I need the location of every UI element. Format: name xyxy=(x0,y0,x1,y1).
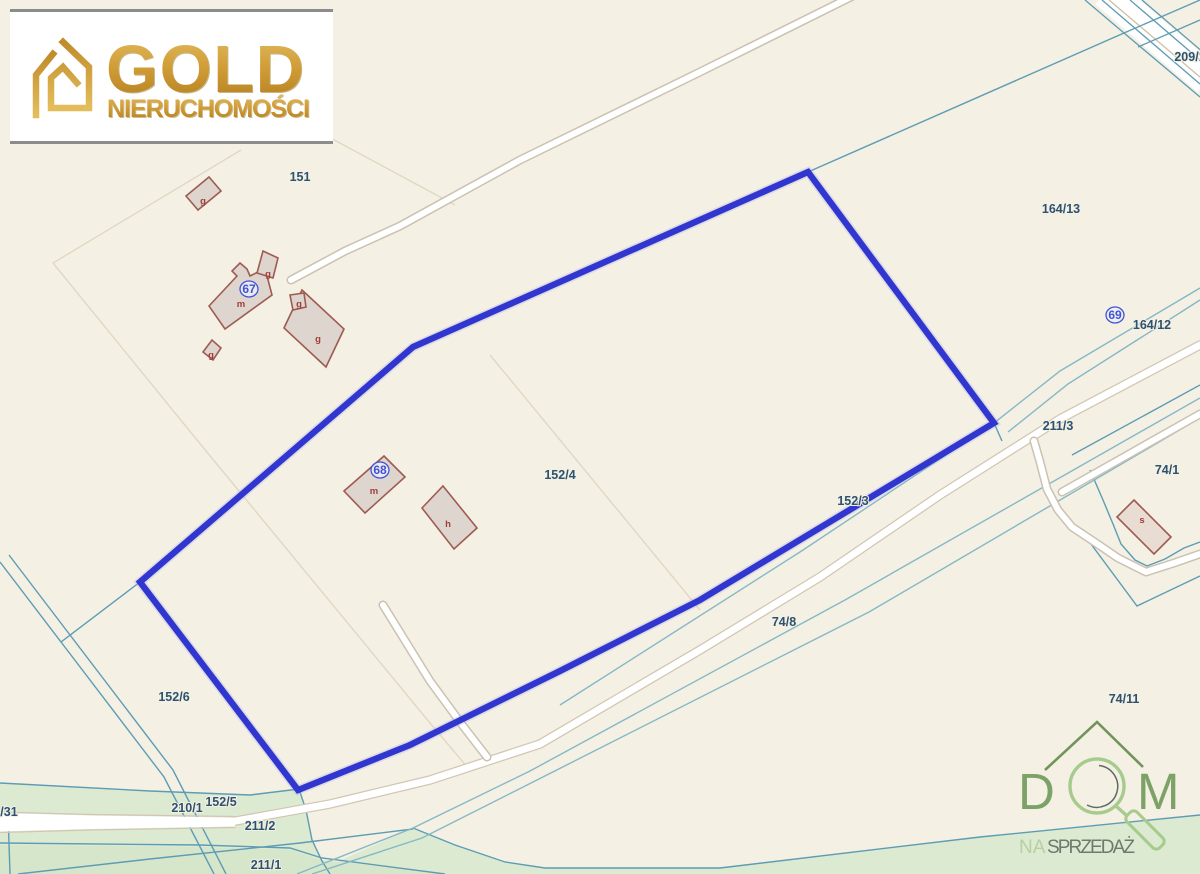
svg-text:74/1: 74/1 xyxy=(1155,463,1179,477)
svg-text:211/3: 211/3 xyxy=(1043,419,1074,433)
svg-text:g: g xyxy=(265,269,271,280)
svg-text:74/8: 74/8 xyxy=(772,615,796,629)
svg-text:67: 67 xyxy=(242,282,256,296)
svg-text:NIERUCHOMOŚCI: NIERUCHOMOŚCI xyxy=(107,93,310,123)
svg-text:g: g xyxy=(315,334,321,345)
svg-text:m: m xyxy=(237,299,245,310)
svg-text:g: g xyxy=(200,196,206,207)
svg-text:68: 68 xyxy=(373,463,387,477)
svg-text:211/1: 211/1 xyxy=(251,858,282,872)
svg-text:152/5: 152/5 xyxy=(205,795,236,809)
svg-text:/31: /31 xyxy=(0,805,17,819)
svg-text:74/11: 74/11 xyxy=(1109,692,1140,706)
svg-text:211/2: 211/2 xyxy=(245,819,276,833)
svg-text:152/4: 152/4 xyxy=(544,468,575,482)
svg-text:m: m xyxy=(370,486,378,497)
svg-text:151: 151 xyxy=(290,170,311,184)
svg-text:209/1: 209/1 xyxy=(1174,50,1200,64)
svg-text:152/3: 152/3 xyxy=(837,494,868,508)
svg-text:g: g xyxy=(296,299,302,310)
svg-text:210/1: 210/1 xyxy=(171,801,202,815)
svg-text:152/6: 152/6 xyxy=(158,690,189,704)
svg-text:h: h xyxy=(445,519,451,530)
svg-text:164/13: 164/13 xyxy=(1042,202,1080,216)
svg-text:M: M xyxy=(1137,763,1179,820)
svg-text:NA: NA xyxy=(1019,837,1046,858)
svg-text:D: D xyxy=(1018,763,1055,820)
svg-text:g: g xyxy=(208,350,214,361)
svg-text:69: 69 xyxy=(1108,308,1122,322)
svg-text:164/12: 164/12 xyxy=(1133,318,1171,332)
svg-text:SPRZEDAŻ: SPRZEDAŻ xyxy=(1047,837,1135,858)
svg-text:s: s xyxy=(1139,515,1144,526)
